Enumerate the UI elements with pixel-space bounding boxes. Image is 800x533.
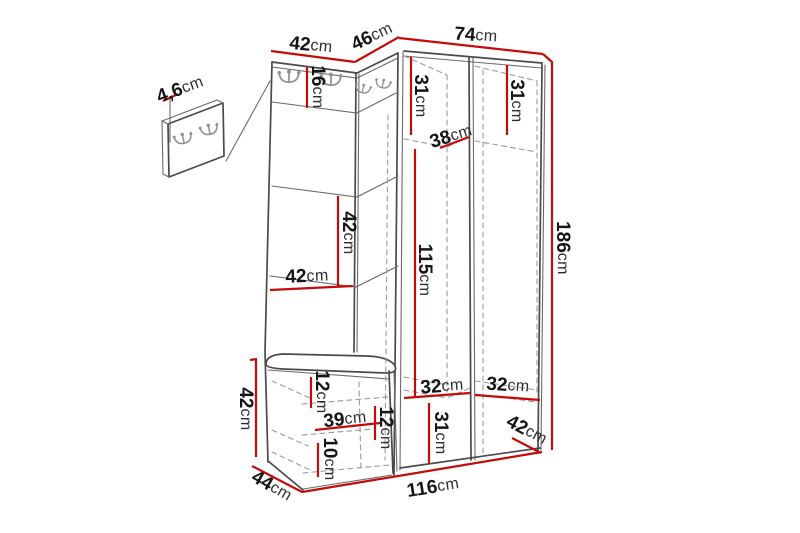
unit-hooks — [278, 70, 393, 95]
coat-hook-icon — [278, 70, 301, 82]
measure-open-shelf-width — [270, 286, 353, 290]
dim-label-total-width: 116cm — [405, 472, 460, 501]
dimension-labels: 4,6cm 42cm 46cm 74cm 16cm 31cm 31cm 38cm… — [154, 17, 574, 506]
dim-label-right-door-inner-width: 32cm — [486, 373, 531, 397]
dim-label-open-shelf-height: 42cm — [339, 211, 360, 254]
dim-label-wardrobe-depth: 38cm — [427, 120, 475, 153]
dim-label-open-shelf-width: 42cm — [285, 265, 329, 287]
dim-label-corner-width: 46cm — [348, 17, 396, 54]
main-unit-outline — [265, 51, 545, 477]
dim-label-hook-strip-height: 16cm — [308, 65, 329, 108]
furniture-dimension-diagram: 4,6cm 42cm 46cm 74cm 16cm 31cm 31cm 38cm… — [0, 0, 800, 533]
coat-hook-icon — [198, 122, 220, 137]
dim-label-total-height: 186cm — [553, 221, 574, 275]
dim-label-bench-inner-width: 39cm — [322, 406, 367, 431]
dim-label-bench-mid-gap: 12cm — [376, 406, 397, 449]
dim-label-right-door-top-height: 31cm — [507, 79, 528, 122]
dim-label-bottom-compartment-height: 31cm — [431, 411, 452, 454]
dim-label-bench-height: 42cm — [236, 387, 257, 430]
dim-label-panel-thickness: 4,6cm — [154, 71, 207, 107]
dim-label-wardrobe-width: 74cm — [454, 23, 499, 47]
coat-hook-icon — [374, 77, 393, 90]
dim-label-hanging-height: 115cm — [415, 244, 436, 297]
coat-hook-icon — [172, 131, 194, 146]
dim-label-bench-top-gap: 12cm — [312, 370, 333, 413]
dim-label-bench-bottom-gap: 10cm — [320, 437, 341, 480]
detail-leader-line — [226, 81, 270, 161]
dim-label-bench-depth: 44cm — [248, 466, 296, 506]
dim-label-hook-panel-width: 42cm — [288, 32, 333, 57]
measure-right-door-inner-width — [475, 395, 540, 400]
wall-hook-panel-detail — [162, 98, 224, 177]
hidden-edges — [272, 56, 537, 473]
dim-label-right-bottom-depth: 42cm — [503, 411, 551, 450]
dimension-diagram-page: 4,6cm 42cm 46cm 74cm 16cm 31cm 31cm 38cm… — [0, 0, 800, 533]
dim-label-left-door-top-height: 31cm — [411, 74, 432, 117]
